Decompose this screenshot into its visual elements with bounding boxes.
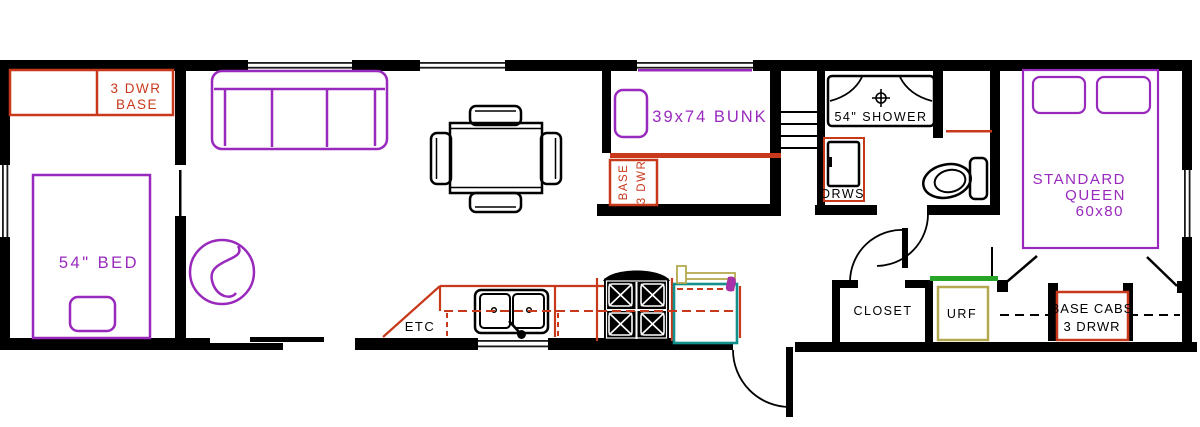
closet-door-swing-arc	[850, 230, 905, 282]
toilet	[920, 158, 987, 202]
stove	[603, 271, 670, 342]
shower-curtain-right	[900, 77, 932, 101]
queen-pillow	[1033, 77, 1085, 113]
window	[2, 165, 8, 237]
vanity-shelf-line	[946, 130, 992, 133]
bathroom: 54" SHOWER DRWS	[821, 76, 987, 202]
bunk-label: 39x74 BUNK	[652, 108, 767, 126]
window	[637, 62, 753, 69]
left-bedroom: 3 DWR BASE 54" BED	[10, 70, 173, 338]
pocket-door-leaf	[179, 170, 182, 216]
window	[248, 62, 352, 69]
window	[478, 340, 548, 347]
stairs	[781, 112, 817, 148]
dining-table	[450, 123, 542, 193]
hallway: CLOSET URF	[850, 214, 998, 340]
closet-label: CLOSET	[853, 304, 912, 318]
drawers-label: DRWS	[821, 187, 865, 201]
master-bedroom: STANDARD QUEEN 60x80 BASE CABS 3 DRWR	[1000, 70, 1180, 340]
base-cabs-label-line1: BASE CABS	[1051, 301, 1134, 316]
queen-bed	[1023, 70, 1158, 248]
sink	[475, 290, 548, 338]
window	[1184, 170, 1191, 237]
shower-label: 54" SHOWER	[834, 110, 927, 124]
bed-54-label: 54" BED	[59, 254, 139, 272]
bed-54-pillow	[70, 297, 115, 331]
dining-chair	[431, 133, 451, 184]
shower-head-icon	[872, 89, 890, 107]
bunk-platform-edge	[610, 153, 781, 158]
dining-chair	[470, 193, 521, 212]
sofa	[212, 71, 387, 149]
cabinet-label-line1: 3 DWR	[111, 81, 162, 96]
bunk-base-label-line1: BASE	[618, 164, 630, 201]
swivel-chair	[190, 240, 254, 304]
entry-door	[733, 347, 793, 417]
queen-label-line3: 60x80	[1076, 203, 1124, 220]
kitchen: ETC	[383, 266, 740, 343]
entry-door-swing-arc	[733, 350, 790, 407]
refrigerator	[674, 266, 737, 343]
window	[420, 62, 505, 69]
counter-label-etc: ETC	[405, 319, 436, 334]
door-jamb-line	[991, 247, 993, 277]
bunk-pillow	[615, 90, 647, 137]
dining-chair	[541, 133, 561, 184]
living-area	[190, 71, 561, 304]
drawer-handle	[827, 157, 832, 167]
bunk-base-label-line2: 3 DWR	[636, 160, 648, 205]
urf-shelf-line	[930, 276, 998, 281]
queen-label-line1: STANDARD	[1033, 171, 1126, 188]
toilet-tank	[970, 158, 987, 199]
queen-label-line2: QUEEN	[1065, 187, 1126, 204]
bunk-room: BASE 3 DWR 39x74 BUNK	[610, 69, 781, 205]
closet-door-leaf	[902, 228, 908, 268]
bunk-window-sill	[638, 69, 752, 72]
base-cabs-label-line2: 3 DRWR	[1063, 319, 1120, 334]
shower-curtain-left	[830, 77, 862, 101]
urf-label: URF	[947, 307, 977, 321]
queen-pillow	[1097, 77, 1150, 113]
counter-flap-hinge	[677, 266, 686, 283]
wardrobe-door-diagonals	[1002, 256, 1177, 286]
floor-plan-page: 3 DWR BASE 54" BED	[0, 0, 1200, 427]
cabinet-label-line2: BASE	[116, 97, 158, 112]
floor-plan-canvas: 3 DWR BASE 54" BED	[0, 0, 1200, 427]
